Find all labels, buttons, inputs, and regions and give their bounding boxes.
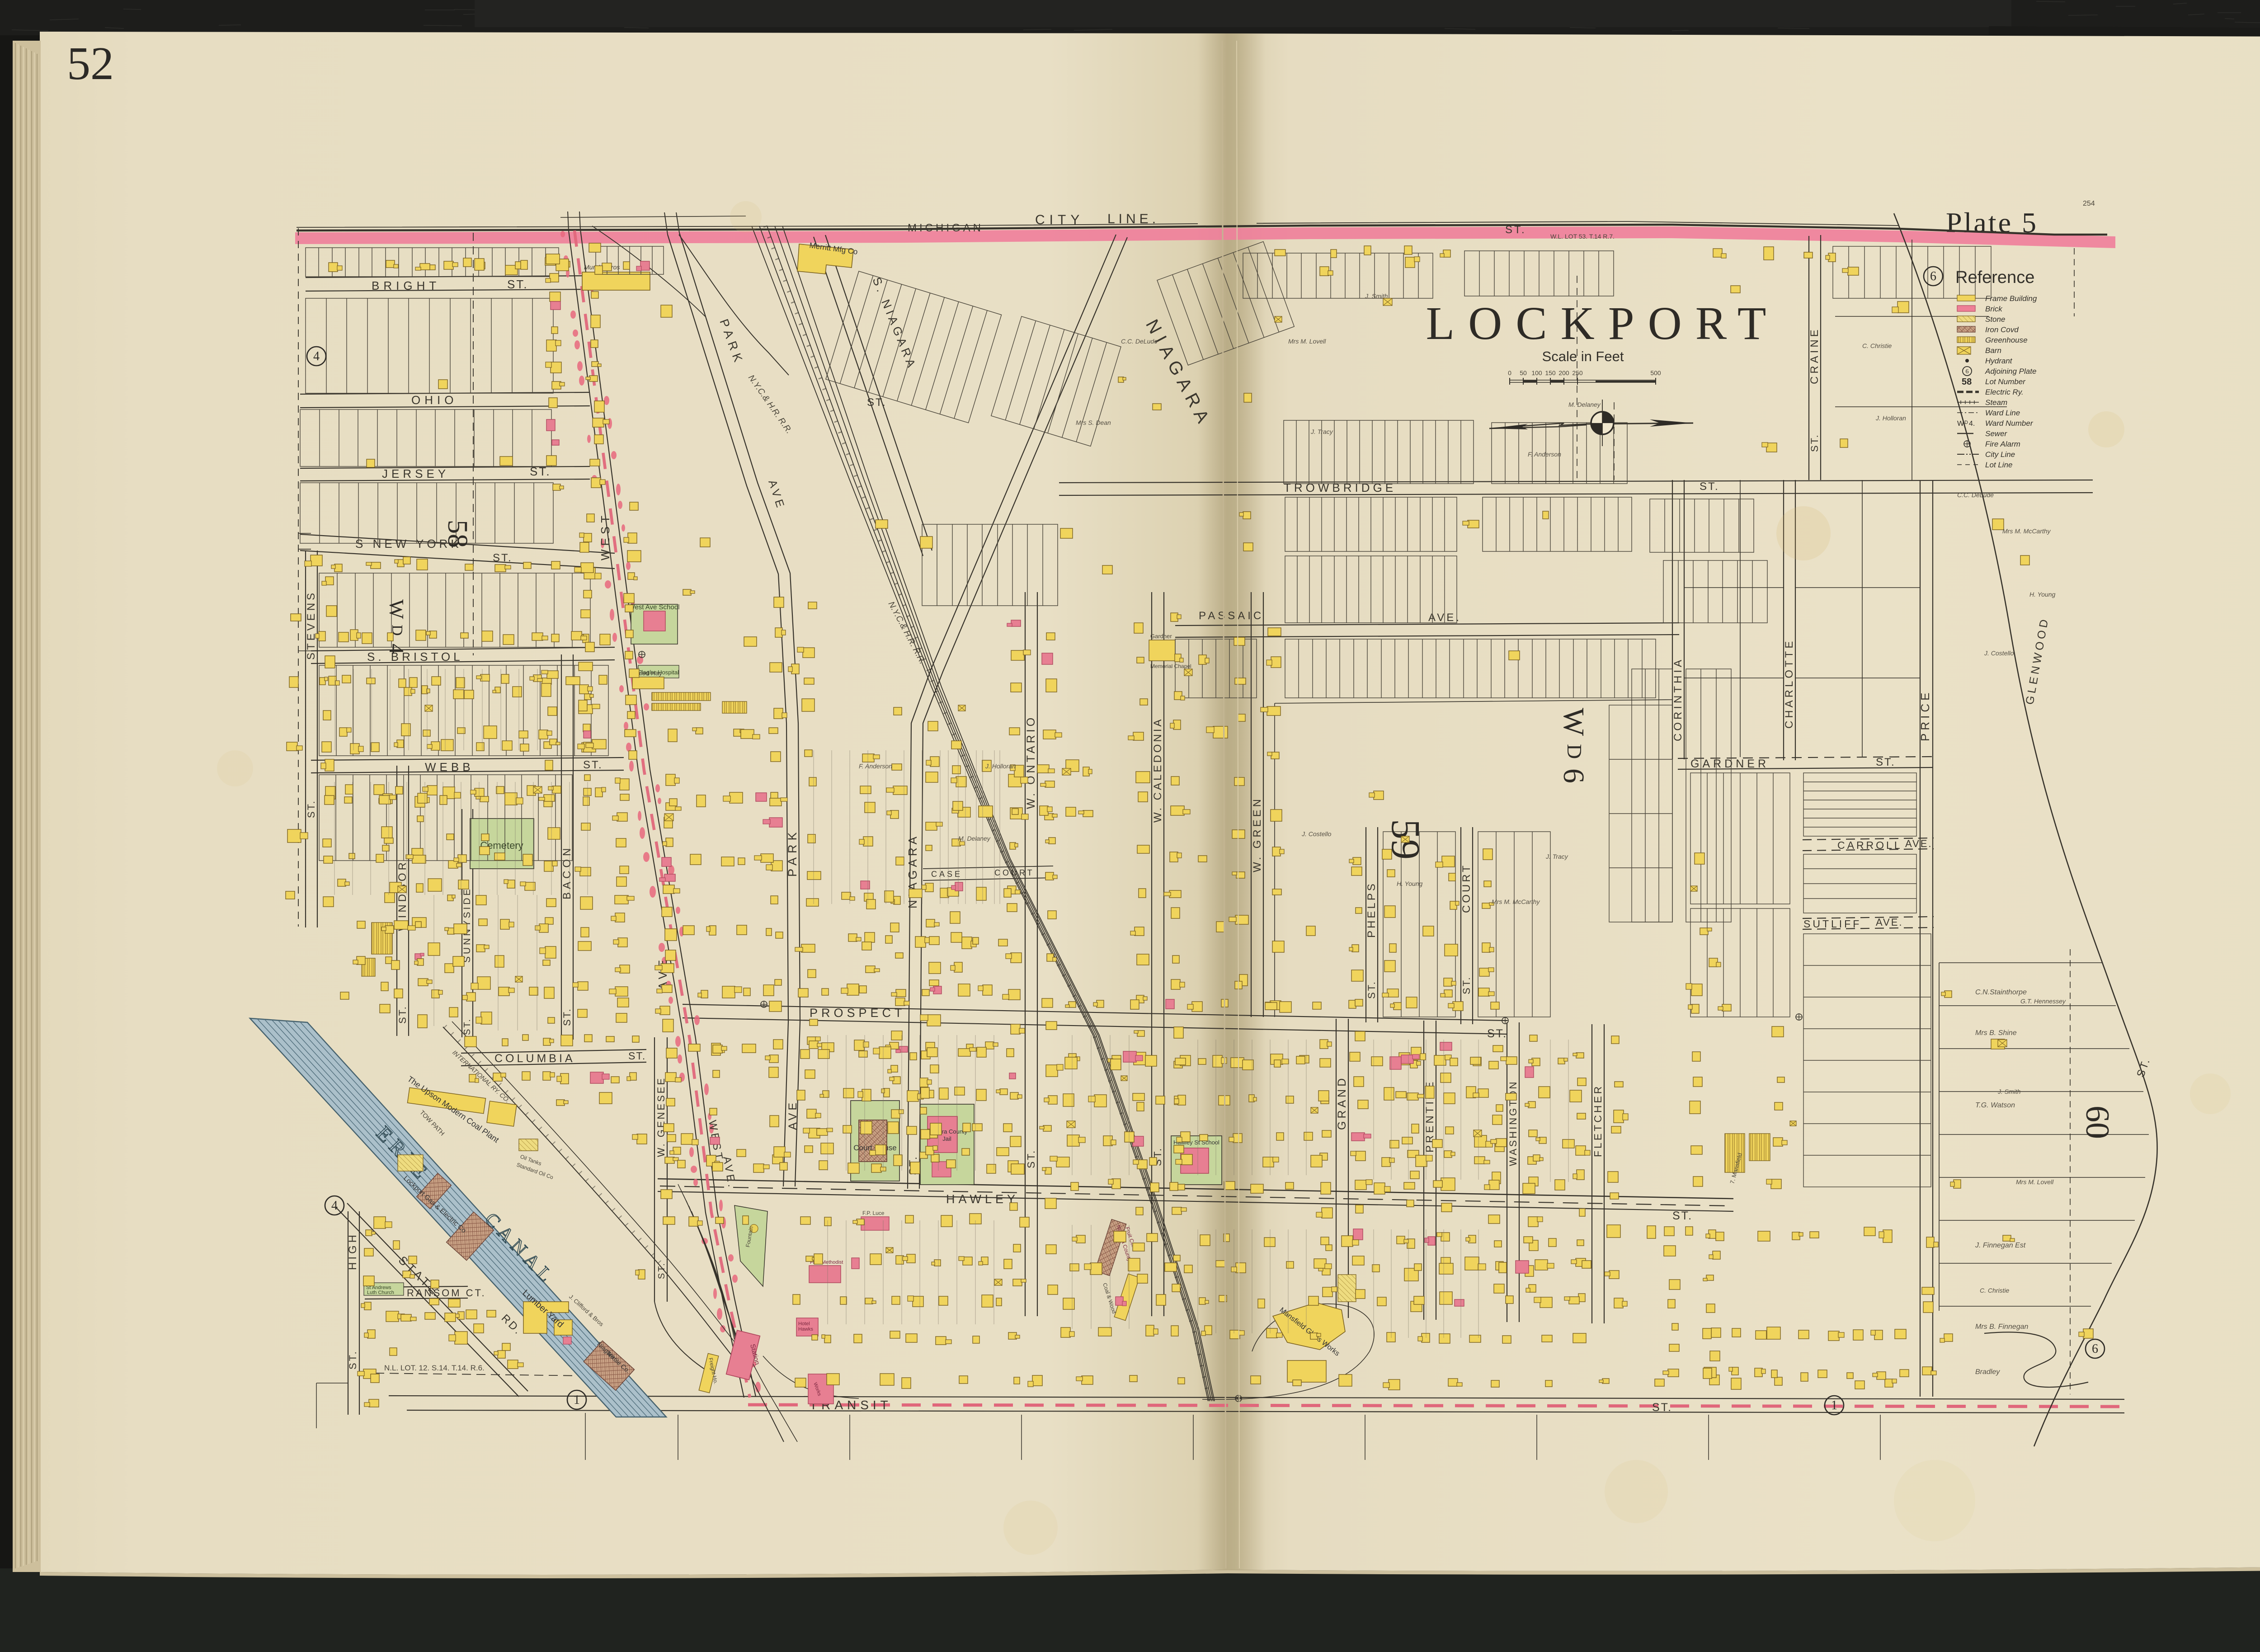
svg-text:LINE.: LINE.	[1107, 212, 1159, 226]
svg-text:GARDNER: GARDNER	[1690, 758, 1769, 770]
svg-text:PARK: PARK	[786, 828, 799, 877]
svg-text:ST.: ST.	[561, 1007, 573, 1026]
svg-text:Mrs M. McCarthy: Mrs M. McCarthy	[1492, 898, 1540, 905]
svg-text:J. Tracy: J. Tracy	[1545, 853, 1568, 860]
svg-text:Lot Number: Lot Number	[1985, 377, 2026, 386]
svg-text:W. ONTARIO: W. ONTARIO	[1025, 715, 1037, 809]
svg-text:Mrs S. Dean: Mrs S. Dean	[1076, 419, 1111, 426]
svg-text:M. Delaney: M. Delaney	[958, 835, 991, 842]
svg-text:T.G. Watson: T.G. Watson	[1975, 1101, 2015, 1109]
svg-text:C.N.Stainthorpe: C.N.Stainthorpe	[1975, 988, 2027, 996]
svg-text:C. Christie: C. Christie	[1980, 1287, 2010, 1294]
svg-text:Memorial Chapel: Memorial Chapel	[1150, 663, 1191, 669]
svg-text:58: 58	[1962, 377, 1972, 387]
svg-text:PROSPECT: PROSPECT	[810, 1006, 906, 1020]
svg-text:PRICE: PRICE	[1918, 690, 1932, 741]
svg-text:Greenhouse: Greenhouse	[1985, 336, 2028, 344]
svg-text:Hotel: Hotel	[798, 1321, 810, 1327]
svg-text:ST.: ST.	[1025, 1149, 1037, 1168]
svg-text:JERSEY: JERSEY	[382, 467, 449, 480]
svg-text:ST.: ST.	[493, 552, 513, 564]
svg-text:F. Anderson: F. Anderson	[1528, 451, 1561, 458]
svg-text:W.L. LOT 53. T.14 R.7.: W.L. LOT 53. T.14 R.7.	[1550, 233, 1615, 240]
svg-text:4: 4	[331, 1199, 338, 1213]
svg-text:Lot Line: Lot Line	[1985, 461, 2013, 469]
svg-text:CASE: CASE	[931, 870, 962, 879]
svg-text:ST.: ST.	[306, 800, 317, 818]
svg-text:PHELPS: PHELPS	[1365, 881, 1378, 938]
svg-text:CITY: CITY	[1035, 212, 1084, 227]
svg-text:Mrs M. Lovell: Mrs M. Lovell	[2016, 1178, 2054, 1186]
svg-text:OHIO: OHIO	[411, 393, 457, 407]
svg-text:BACON: BACON	[561, 845, 573, 899]
svg-text:COURT: COURT	[1460, 863, 1473, 913]
svg-text:Gardner: Gardner	[1150, 633, 1172, 640]
svg-text:Electric Ry.: Electric Ry.	[1985, 388, 2024, 396]
svg-text:Mrs M. McCarthy: Mrs M. McCarthy	[2002, 527, 2051, 535]
svg-text:W: W	[385, 599, 408, 619]
svg-text:4.: 4.	[1969, 420, 1975, 428]
svg-text:200: 200	[1558, 369, 1569, 377]
svg-text:ST.: ST.	[347, 1350, 358, 1370]
svg-text:ST.: ST.	[462, 1018, 472, 1035]
svg-text:C.C. DeLude: C.C. DeLude	[1121, 338, 1158, 345]
svg-text:J. Holloran: J. Holloran	[1875, 414, 1906, 422]
svg-text:D: D	[1964, 420, 1968, 425]
svg-text:D: D	[389, 625, 405, 636]
svg-text:58: 58	[442, 520, 473, 548]
svg-text:J. Tracy: J. Tracy	[1310, 428, 1333, 435]
svg-text:J. Finnegan Est: J. Finnegan Est	[1975, 1242, 2026, 1249]
svg-text:AVE.: AVE.	[1905, 838, 1933, 849]
svg-text:ST.: ST.	[1366, 980, 1377, 999]
svg-text:CORINTHIA: CORINTHIA	[1672, 657, 1684, 741]
svg-text:Jail: Jail	[942, 1135, 951, 1142]
svg-text:Brick: Brick	[1985, 305, 2003, 313]
svg-text:Mrs M. Lovell: Mrs M. Lovell	[1288, 338, 1326, 345]
svg-text:Mrs B. Finnegan: Mrs B. Finnegan	[1975, 1323, 2028, 1331]
svg-text:LOCKPORT: LOCKPORT	[1426, 297, 1780, 349]
svg-text:Mrs B. Shine: Mrs B. Shine	[1975, 1029, 2017, 1037]
svg-text:TROWBRIDGE: TROWBRIDGE	[1284, 481, 1396, 494]
svg-text:W. GENESEE: W. GENESEE	[655, 1077, 667, 1157]
svg-text:254: 254	[2083, 200, 2095, 207]
svg-text:G.T. Hennessey: G.T. Hennessey	[2020, 998, 2066, 1005]
svg-text:W. CALEDONIA: W. CALEDONIA	[1152, 717, 1164, 823]
svg-text:MICHIGAN: MICHIGAN	[908, 222, 984, 234]
svg-text:Barn: Barn	[1985, 346, 2001, 355]
svg-text:6: 6	[1557, 768, 1590, 783]
svg-text:W: W	[1557, 708, 1590, 736]
svg-text:FLETCHER: FLETCHER	[1592, 1084, 1604, 1157]
svg-text:M. Delaney: M. Delaney	[1568, 401, 1601, 408]
svg-text:CARROLL: CARROLL	[1837, 839, 1902, 851]
svg-text:1: 1	[1831, 1398, 1837, 1412]
svg-text:ST.: ST.	[397, 1005, 408, 1024]
svg-text:ST.: ST.	[1487, 1027, 1507, 1040]
svg-text:ST.: ST.	[1876, 756, 1896, 768]
svg-text:ST.: ST.	[628, 1050, 646, 1062]
svg-text:N.L. LOT. 12. S.14. T.14. R: N.L. LOT. 12. S.14. T.14. R.6.	[384, 1364, 485, 1372]
svg-text:AVE.: AVE.	[1876, 917, 1903, 928]
svg-text:100: 100	[1531, 369, 1542, 377]
svg-text:ST.: ST.	[1505, 224, 1526, 236]
svg-text:6: 6	[1966, 368, 1969, 375]
svg-text:CHARLOTTE: CHARLOTTE	[1783, 639, 1795, 729]
svg-text:4: 4	[385, 644, 408, 654]
svg-text:HAWLEY: HAWLEY	[946, 1192, 1019, 1206]
svg-text:C. Christie: C. Christie	[1862, 342, 1892, 349]
svg-text:CRAINE: CRAINE	[1808, 327, 1821, 384]
svg-text:C.C. DeLude: C.C. DeLude	[1957, 491, 1994, 499]
svg-text:Luth Church: Luth Church	[367, 1290, 394, 1295]
svg-text:6: 6	[2092, 1342, 2098, 1356]
svg-text:J. Holloran: J. Holloran	[985, 762, 1016, 770]
svg-text:ST.: ST.	[657, 1262, 667, 1279]
svg-text:0: 0	[1508, 369, 1511, 377]
svg-text:W. GREEN: W. GREEN	[1251, 796, 1263, 872]
svg-text:Stone: Stone	[1985, 315, 2005, 324]
svg-text:Hawks: Hawks	[798, 1327, 814, 1332]
svg-text:Scale in Feet: Scale in Feet	[1542, 348, 1624, 364]
svg-text:J. Smith: J. Smith	[1997, 1088, 2021, 1095]
svg-text:ST.: ST.	[507, 278, 528, 291]
svg-text:1: 1	[574, 1393, 580, 1407]
svg-text:F. Anderson: F. Anderson	[859, 762, 892, 770]
svg-text:City Line: City Line	[1985, 450, 2015, 459]
svg-text:GRAND: GRAND	[1336, 1076, 1348, 1130]
svg-text:Steam: Steam	[1985, 398, 2007, 407]
svg-text:Ward Line: Ward Line	[1985, 409, 2020, 417]
svg-text:WEST: WEST	[598, 512, 612, 560]
svg-text:Reference: Reference	[1955, 268, 2034, 287]
svg-text:52: 52	[67, 38, 114, 89]
svg-text:COLUMBIA: COLUMBIA	[494, 1052, 575, 1065]
svg-text:Hydrant: Hydrant	[1985, 357, 2013, 365]
svg-text:J. Costello: J. Costello	[1984, 650, 2014, 657]
svg-text:150: 150	[1545, 369, 1556, 377]
svg-text:BRIGHT: BRIGHT	[372, 279, 440, 292]
svg-text:ST.: ST.	[1700, 480, 1719, 493]
svg-text:WASHINGTON: WASHINGTON	[1507, 1080, 1519, 1166]
svg-text:6: 6	[1930, 269, 1936, 283]
svg-text:Ward Number: Ward Number	[1985, 419, 2034, 428]
svg-text:ST.: ST.	[1461, 976, 1472, 994]
svg-text:Adjoining Plate: Adjoining Plate	[1985, 367, 2036, 376]
svg-text:ST.: ST.	[1672, 1210, 1693, 1222]
svg-text:ST.: ST.	[867, 396, 887, 409]
svg-text:D: D	[1563, 744, 1586, 759]
svg-text:West Ave School: West Ave School	[629, 603, 680, 611]
svg-text:500: 500	[1650, 369, 1661, 377]
svg-text:F.P. Luce: F.P. Luce	[862, 1210, 885, 1216]
svg-text:WEBB: WEBB	[425, 760, 474, 774]
svg-text:H. Young: H. Young	[2029, 591, 2056, 598]
svg-text:W: W	[1957, 420, 1964, 428]
svg-text:Bradley: Bradley	[1975, 1368, 2000, 1376]
svg-text:AVE: AVE	[786, 1100, 799, 1130]
svg-text:Frame Building: Frame Building	[1985, 294, 2037, 303]
svg-text:Sewer: Sewer	[1985, 429, 2008, 438]
svg-text:ST.: ST.	[1809, 433, 1820, 452]
svg-text:250: 250	[1572, 369, 1583, 377]
svg-text:ST.: ST.	[1652, 1401, 1672, 1414]
svg-text:Fire Alarm: Fire Alarm	[1985, 440, 2020, 448]
svg-text:SUTLIFF: SUTLIFF	[1803, 918, 1861, 930]
svg-text:S. BRISTOL: S. BRISTOL	[367, 650, 463, 664]
svg-text:ST.: ST.	[583, 759, 603, 771]
svg-text:60: 60	[2079, 1106, 2116, 1139]
svg-text:4: 4	[313, 349, 320, 363]
svg-text:J. Costello: J. Costello	[1301, 830, 1332, 838]
svg-text:Iron Covd: Iron Covd	[1985, 325, 2019, 334]
svg-text:50: 50	[1520, 369, 1527, 377]
svg-text:PASSAIC: PASSAIC	[1199, 610, 1264, 622]
svg-text:HIGH: HIGH	[347, 1232, 359, 1270]
svg-text:STEVENS: STEVENS	[305, 590, 317, 660]
svg-text:H. Young: H. Young	[1397, 880, 1423, 887]
